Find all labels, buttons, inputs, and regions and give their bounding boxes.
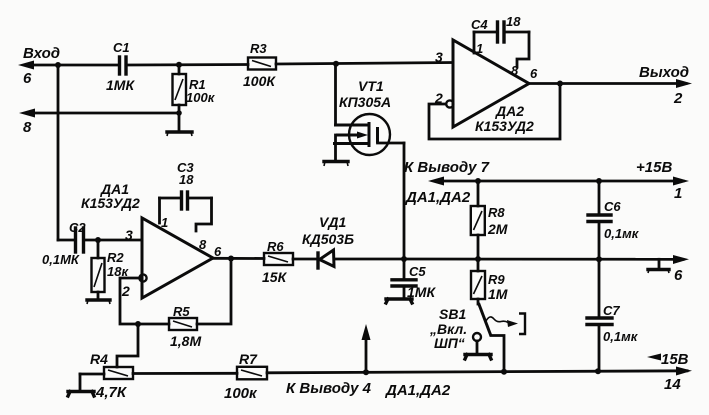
svg-text:1МК: 1МК bbox=[106, 77, 135, 93]
svg-text:R5: R5 bbox=[173, 304, 190, 319]
svg-text:0,1мк: 0,1мк bbox=[604, 226, 640, 241]
svg-text:0,1МК: 0,1МК bbox=[42, 252, 80, 267]
svg-text:КД503Б: КД503Б bbox=[302, 231, 354, 247]
svg-text:8: 8 bbox=[199, 237, 207, 252]
svg-text:К Выводу 7: К Выводу 7 bbox=[404, 159, 490, 176]
svg-text:К153УД2: К153УД2 bbox=[475, 118, 534, 134]
svg-text:1: 1 bbox=[161, 215, 168, 230]
svg-text:18: 18 bbox=[506, 14, 521, 29]
svg-text:ДА1,ДА2: ДА1,ДА2 bbox=[404, 189, 471, 206]
svg-text:ДА1,ДА2: ДА1,ДА2 bbox=[384, 382, 451, 399]
svg-text:2: 2 bbox=[121, 283, 130, 299]
svg-text:100к: 100к bbox=[186, 90, 216, 105]
svg-text:С6: С6 bbox=[604, 199, 621, 214]
svg-text:R4: R4 bbox=[90, 351, 108, 367]
svg-text:15К: 15К bbox=[262, 269, 288, 285]
svg-text:1: 1 bbox=[476, 41, 483, 56]
svg-text:R2: R2 bbox=[107, 250, 124, 265]
svg-text:6: 6 bbox=[674, 267, 683, 284]
svg-text:ШП“: ШП“ bbox=[434, 335, 465, 351]
svg-text:2М: 2М bbox=[487, 221, 508, 237]
svg-text:1,8М: 1,8М bbox=[170, 333, 201, 349]
svg-text:3: 3 bbox=[435, 49, 443, 65]
svg-text:С5: С5 bbox=[409, 264, 426, 279]
svg-text:К153УД2: К153УД2 bbox=[81, 195, 140, 211]
svg-text:18: 18 bbox=[179, 172, 194, 187]
svg-text:Выход: Выход bbox=[639, 64, 689, 81]
svg-text:1М: 1М bbox=[488, 286, 508, 302]
svg-text:100к: 100к bbox=[224, 385, 258, 402]
svg-text:С2: С2 bbox=[69, 220, 86, 235]
svg-text:R3: R3 bbox=[250, 41, 267, 56]
svg-text:6: 6 bbox=[214, 244, 222, 259]
svg-text:1: 1 bbox=[674, 185, 682, 202]
svg-text:R8: R8 bbox=[488, 205, 505, 220]
svg-text:R7: R7 bbox=[239, 351, 258, 367]
svg-text:+15В: +15В bbox=[636, 159, 672, 176]
svg-text:6: 6 bbox=[530, 66, 538, 81]
svg-text:R6: R6 bbox=[267, 239, 284, 254]
svg-text:14: 14 bbox=[664, 376, 681, 393]
svg-text:С7: С7 bbox=[603, 303, 620, 318]
svg-text:К Выводу 4: К Выводу 4 bbox=[286, 380, 372, 397]
svg-text:2: 2 bbox=[673, 90, 683, 107]
svg-text:С4: С4 bbox=[471, 17, 488, 32]
svg-text:КП305А: КП305А bbox=[339, 94, 391, 110]
svg-text:Вход: Вход bbox=[23, 45, 60, 62]
svg-text:SВ1: SВ1 bbox=[439, 306, 466, 322]
svg-text:6: 6 bbox=[23, 70, 32, 87]
svg-text:4,7К: 4,7К bbox=[95, 384, 128, 401]
svg-text:100К: 100К bbox=[243, 73, 276, 89]
svg-text:VД1: VД1 bbox=[319, 214, 346, 230]
svg-text:8: 8 bbox=[23, 119, 32, 136]
svg-text:VТ1: VТ1 bbox=[358, 78, 384, 94]
svg-text:15В: 15В bbox=[661, 351, 689, 368]
svg-text:С1: С1 bbox=[113, 40, 130, 55]
svg-text:0,1мк: 0,1мк bbox=[603, 329, 639, 344]
svg-text:ДА2: ДА2 bbox=[495, 103, 524, 119]
svg-text:R9: R9 bbox=[488, 272, 505, 287]
